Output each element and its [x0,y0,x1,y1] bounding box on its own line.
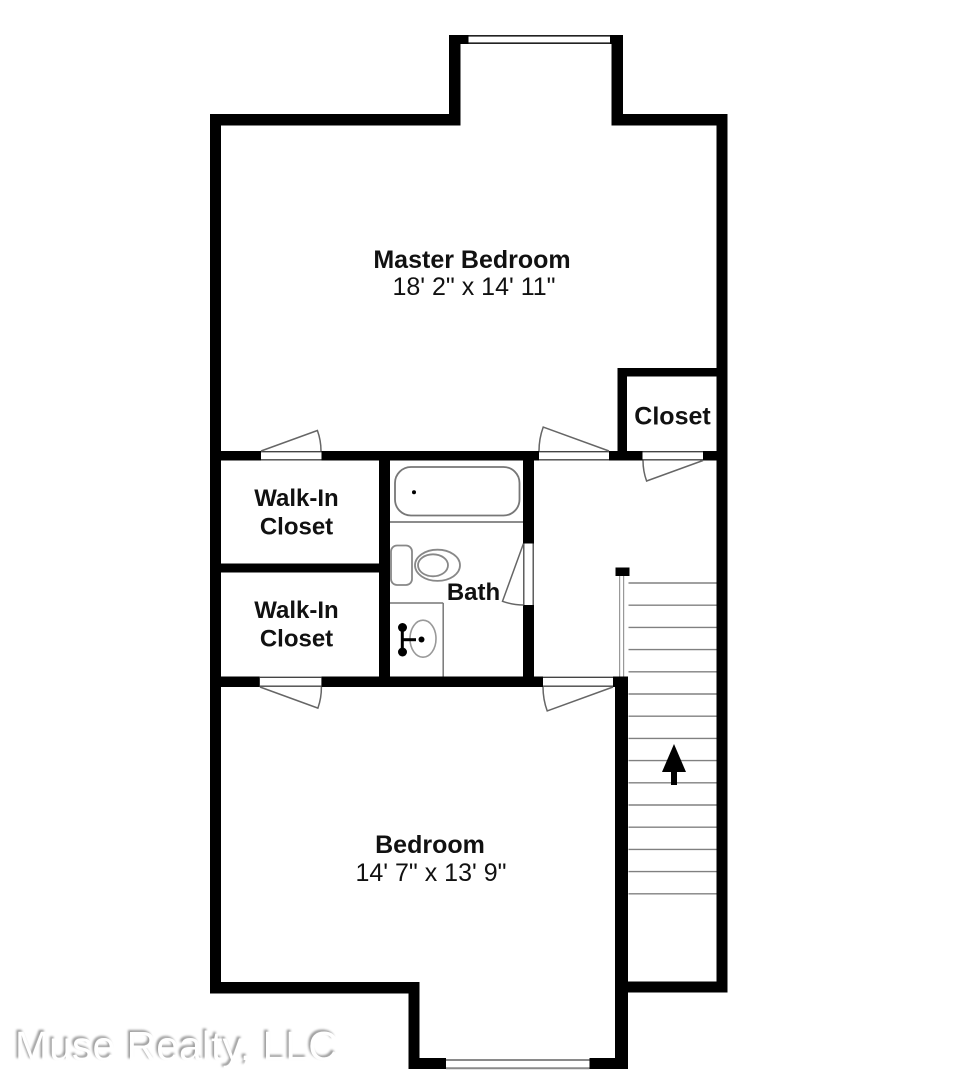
svg-text:14' 7" x 13' 9": 14' 7" x 13' 9" [355,859,506,887]
svg-text:18' 2" x 14' 11": 18' 2" x 14' 11" [392,273,555,301]
svg-text:Walk-In: Walk-In [254,597,338,624]
svg-text:Bedroom: Bedroom [375,831,485,859]
svg-text:Closet: Closet [634,403,711,431]
svg-text:Walk-In: Walk-In [254,485,338,512]
svg-text:Closet: Closet [260,626,333,653]
svg-text:Bath: Bath [447,579,500,606]
svg-text:Closet: Closet [260,514,333,541]
svg-text:Master Bedroom: Master Bedroom [373,246,570,274]
